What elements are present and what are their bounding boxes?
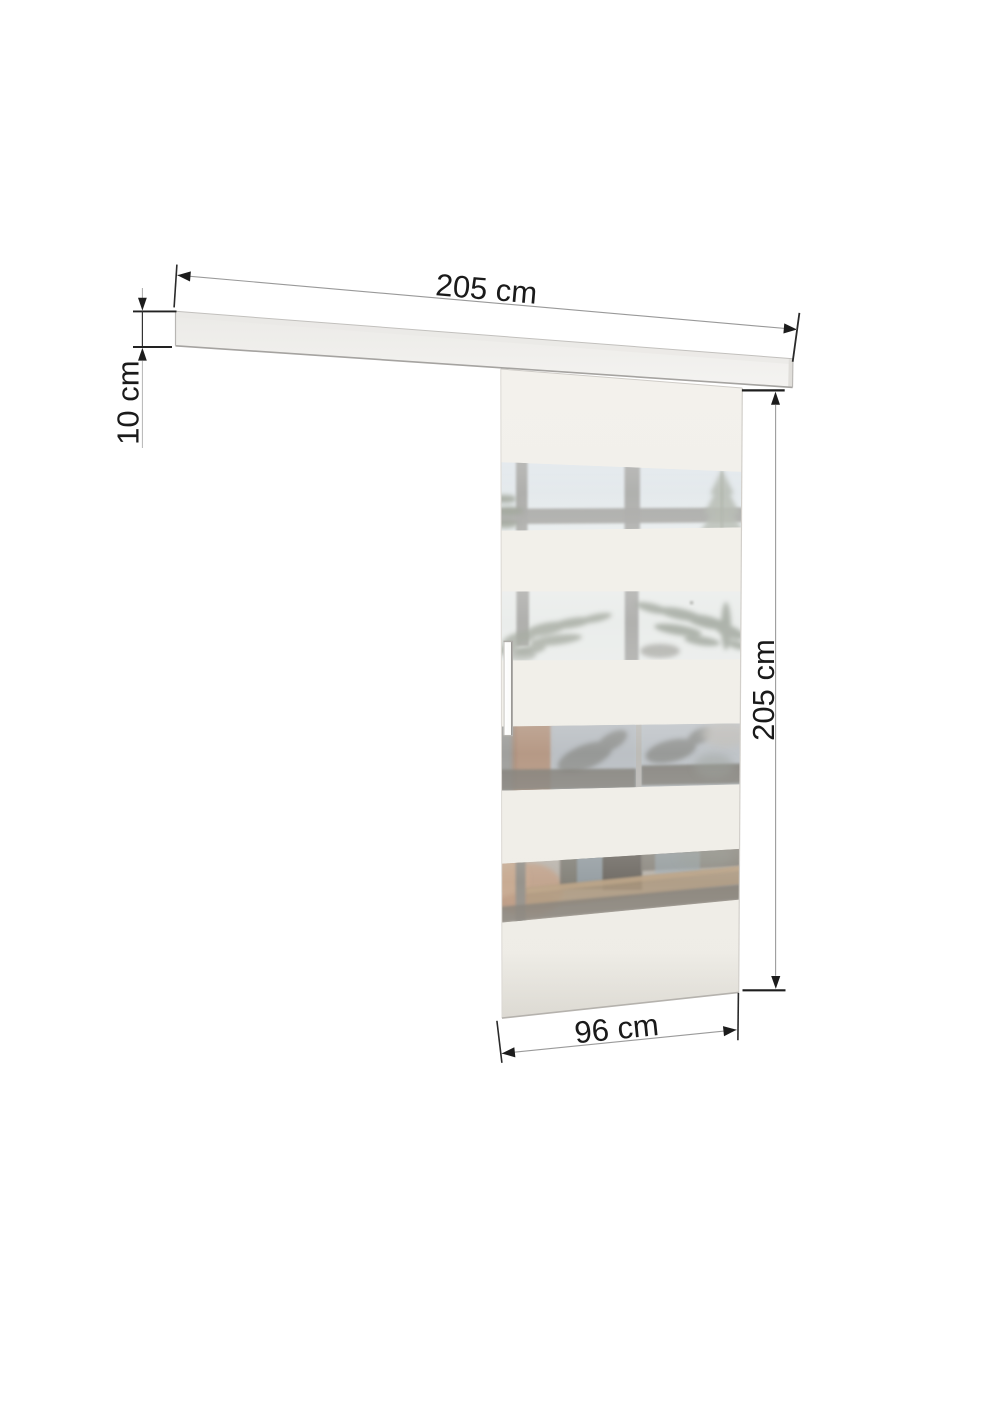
svg-text:10 cm: 10 cm [111,360,146,444]
svg-text:205 cm: 205 cm [746,639,781,741]
